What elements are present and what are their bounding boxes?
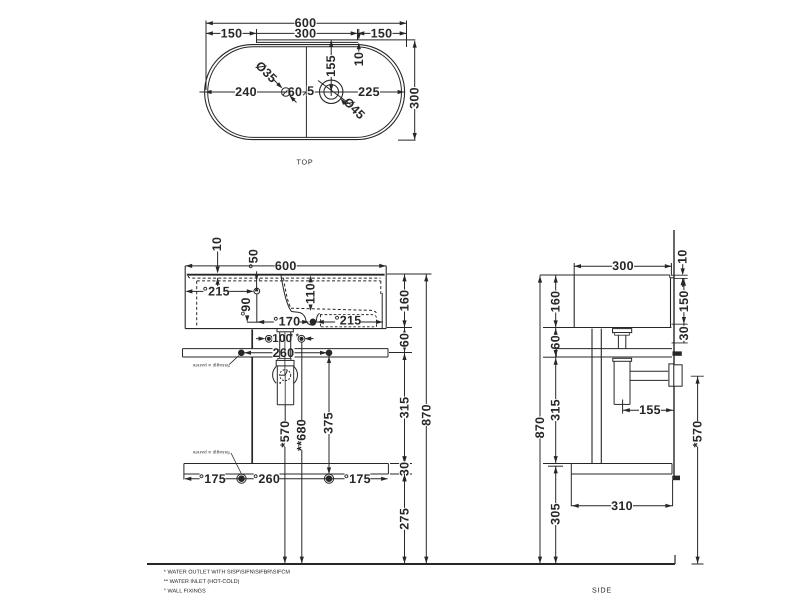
svg-text:°260: °260 (253, 472, 280, 486)
svg-text:150: 150 (371, 26, 393, 40)
svg-text:155: 155 (639, 403, 661, 417)
svg-text:**680: **680 (295, 419, 309, 451)
svg-text:°170: °170 (273, 315, 300, 329)
svg-text:225: 225 (358, 85, 380, 99)
svg-text:870: 870 (419, 404, 433, 426)
svg-text:300: 300 (295, 26, 317, 40)
svg-text:160: 160 (549, 291, 563, 313)
svg-text:10: 10 (352, 52, 366, 67)
svg-text:°175: °175 (199, 472, 226, 486)
svg-text:30: 30 (398, 462, 412, 477)
svg-text:30: 30 (677, 326, 691, 341)
svg-text:fissaggi a parete: fissaggi a parete (192, 450, 230, 455)
svg-text:° WALL FIXINGS: ° WALL FIXINGS (164, 588, 206, 594)
svg-text:** WATER INLET (HOT-COLD): ** WATER INLET (HOT-COLD) (164, 579, 240, 585)
svg-text:375: 375 (322, 412, 336, 434)
svg-text:60: 60 (398, 333, 412, 348)
svg-text:10: 10 (675, 249, 689, 264)
svg-text:150: 150 (677, 290, 691, 312)
svg-text:*570: *570 (690, 421, 704, 448)
svg-text:SIDE: SIDE (592, 586, 612, 595)
svg-text:150: 150 (221, 26, 243, 40)
svg-text:305: 305 (549, 503, 563, 525)
svg-text:* *: * * (290, 332, 300, 341)
svg-text:600: 600 (275, 259, 297, 273)
svg-text:°215: °215 (334, 313, 361, 327)
svg-text:TOP: TOP (296, 157, 313, 166)
svg-text:*570: *570 (278, 421, 292, 448)
svg-text:°175: °175 (344, 472, 371, 486)
svg-text:90: 90 (239, 297, 253, 312)
svg-text:275: 275 (398, 508, 412, 530)
svg-text:160: 160 (398, 290, 412, 312)
svg-text:315: 315 (549, 399, 563, 421)
svg-text:10: 10 (210, 237, 224, 252)
svg-text:300: 300 (612, 259, 634, 273)
svg-text:°215: °215 (203, 284, 230, 298)
svg-text:5: 5 (307, 84, 314, 98)
svg-text:240: 240 (235, 85, 257, 99)
svg-text:310: 310 (611, 499, 633, 513)
svg-text:°50: °50 (246, 249, 260, 269)
svg-text:870: 870 (533, 417, 547, 439)
svg-text:fissaggi a parete: fissaggi a parete (192, 363, 230, 368)
svg-text:* WATER OUTLET WITH SISP\SIFN: * WATER OUTLET WITH SISP\SIFN\SIFBR\SIFC… (164, 570, 291, 576)
svg-text:155: 155 (324, 55, 338, 77)
svg-text:110: 110 (304, 283, 318, 304)
svg-text:300: 300 (407, 87, 421, 109)
svg-text:60: 60 (549, 335, 563, 350)
svg-text:315: 315 (398, 397, 412, 419)
